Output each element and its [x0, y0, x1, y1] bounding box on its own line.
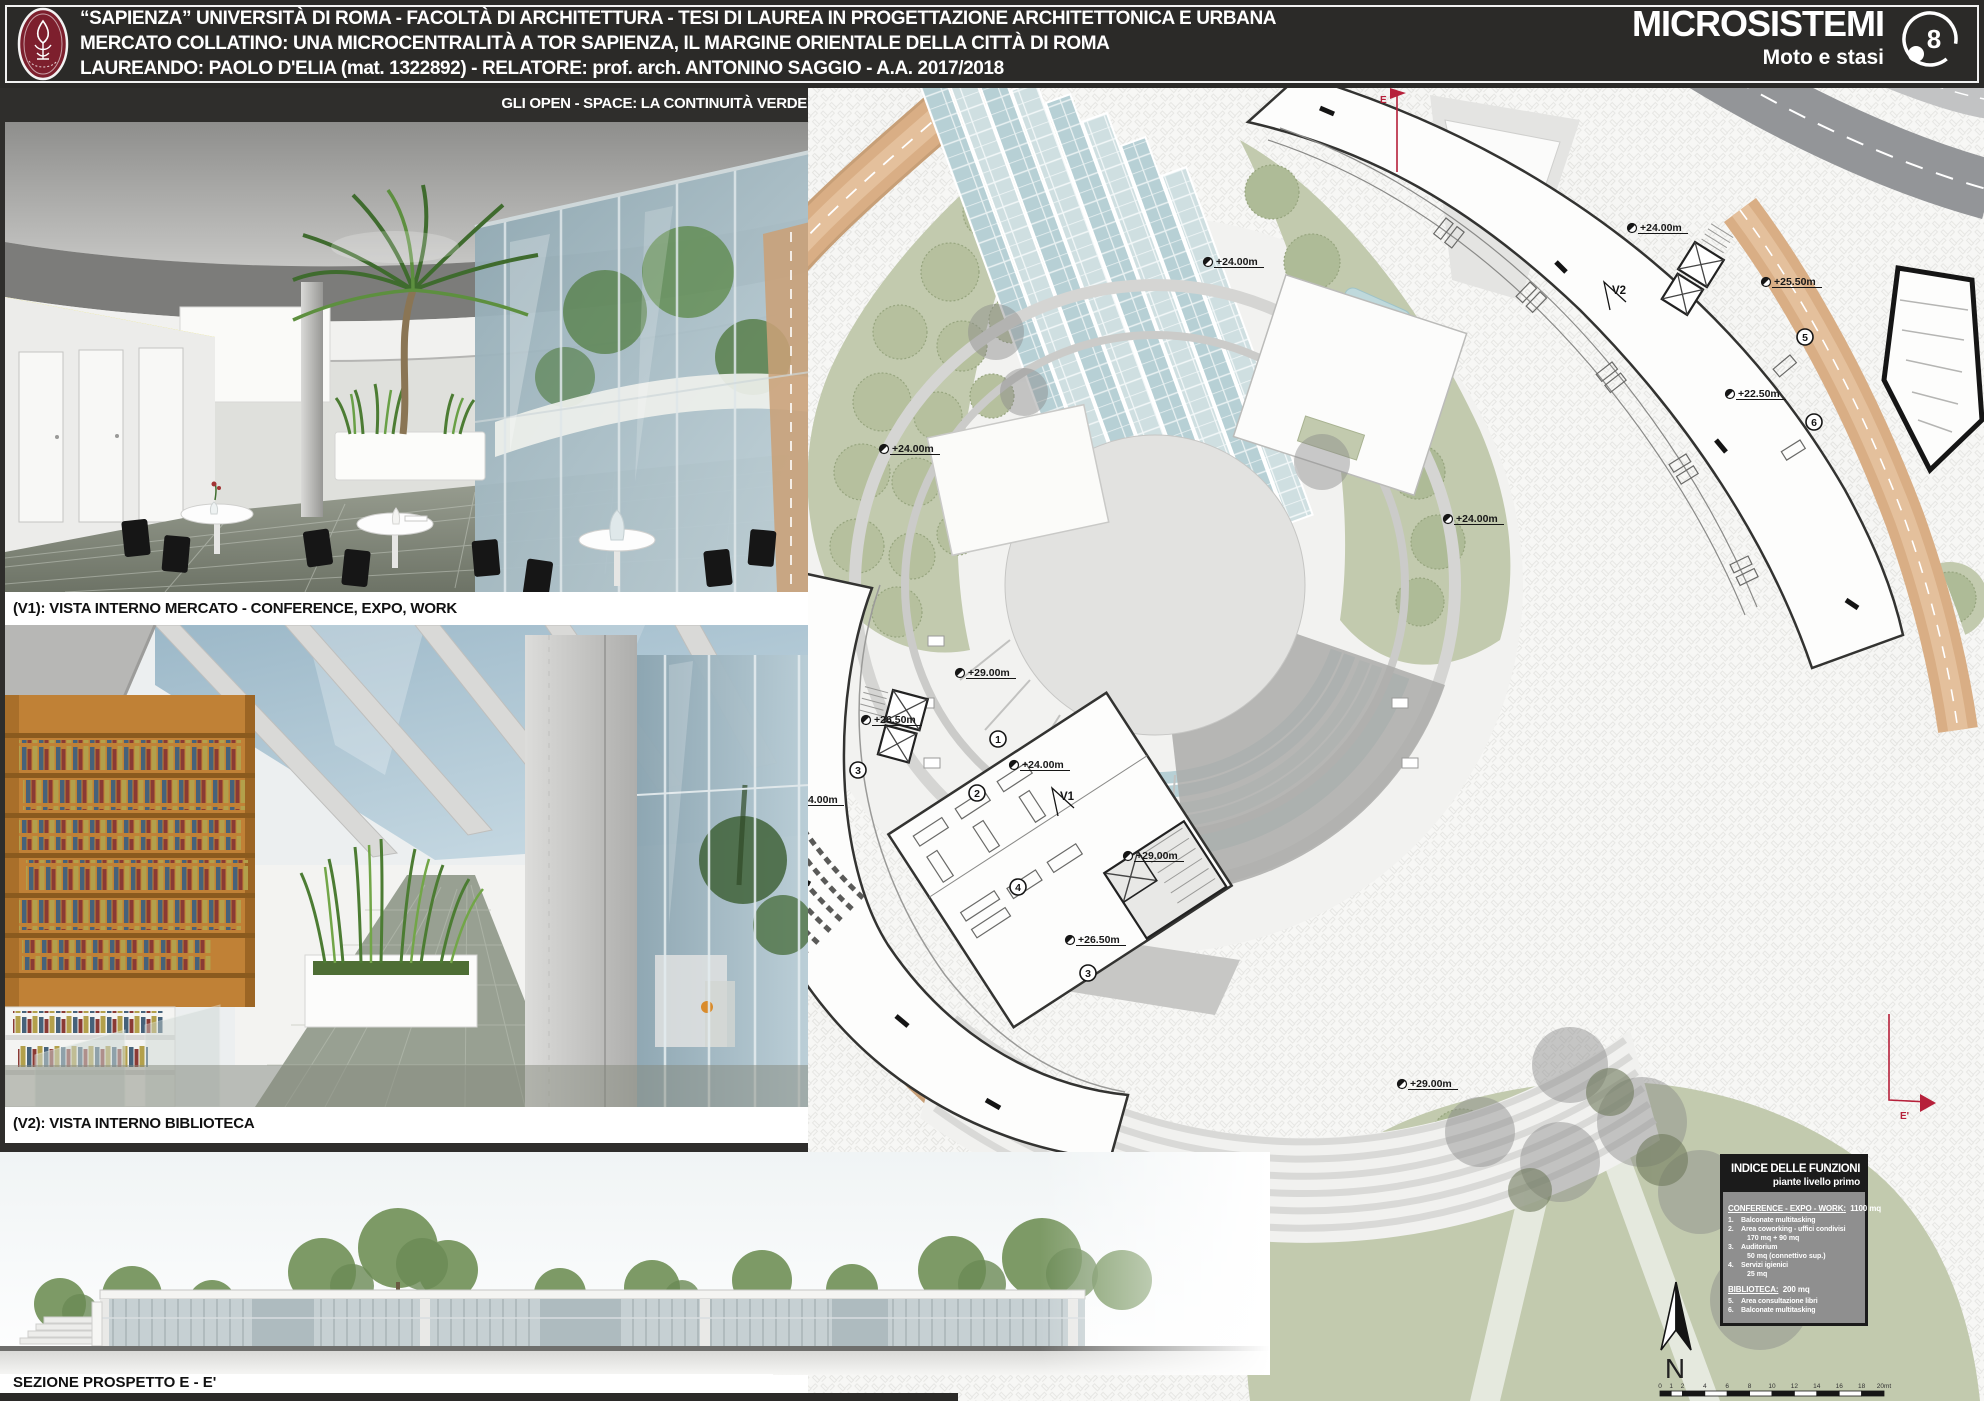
svg-text:1: 1	[995, 734, 1001, 746]
legend-item-detail: 25 mq	[1728, 1270, 1861, 1279]
scale-tick-label: 20mt	[1877, 1383, 1892, 1390]
v2-render-graphic	[5, 625, 810, 1107]
header-bar: “SAPIENZA” UNIVERSITÀ DI ROMA - FACOLTÀ …	[0, 0, 1984, 88]
sheet-number: 8	[1927, 24, 1941, 54]
scale-tick-label: 12	[1791, 1383, 1799, 1390]
scale-tick-label: 2	[1681, 1383, 1685, 1390]
svg-text:2: 2	[974, 788, 980, 800]
svg-text:+24.00m: +24.00m	[1216, 256, 1258, 268]
function-marker: 4	[1010, 879, 1026, 895]
series-subtitle: Moto e stasi	[1632, 46, 1884, 70]
legend-item: 6.Balconate multitasking	[1728, 1306, 1861, 1315]
doors	[19, 348, 183, 522]
svg-text:+26.50m: +26.50m	[874, 714, 916, 726]
scale-tick-label: 6	[1725, 1383, 1729, 1390]
svg-text:+24.00m: +24.00m	[1640, 222, 1682, 234]
svg-text:6: 6	[1811, 417, 1817, 429]
scale-tick-label: 8	[1748, 1383, 1752, 1390]
scale-tick-label: 1	[1669, 1383, 1673, 1390]
svg-text:+22.50m: +22.50m	[1738, 388, 1780, 400]
legend-item: 4.Servizi igienici	[1728, 1261, 1861, 1270]
svg-text:V2: V2	[1612, 285, 1626, 297]
svg-text:+29.00m: +29.00m	[1410, 1078, 1452, 1090]
sapienza-logo	[17, 7, 69, 81]
section-building	[100, 1290, 1085, 1346]
series-block: MICROSISTEMI Moto e stasi	[1632, 5, 1884, 70]
function-marker: 5	[1797, 329, 1813, 345]
scale-tick-label: 10	[1768, 1383, 1776, 1390]
svg-text:+25.50m: +25.50m	[1774, 276, 1816, 288]
legend-item: 2.Area coworking - uffici condivisi	[1728, 1225, 1861, 1234]
v1-render-graphic	[5, 122, 810, 592]
bookshelf	[5, 695, 255, 1007]
function-marker: 3	[850, 762, 866, 778]
scale-tick-label: 14	[1813, 1383, 1821, 1390]
svg-text:3: 3	[855, 765, 861, 777]
sheet-number-badge: 8	[1898, 6, 1962, 72]
section-caption: SEZIONE PROSPETTO E - E'	[0, 1374, 773, 1393]
legend-title-block: INDICE DELLE FUNZIONI piante livello pri…	[1723, 1157, 1865, 1192]
legend-group-heading: BIBLIOTECA: 200 mq	[1728, 1285, 1861, 1294]
header-line3: LAUREANDO: PAOLO D'ELIA (mat. 1322892) -…	[80, 56, 1380, 81]
thesis-board: “SAPIENZA” UNIVERSITÀ DI ROMA - FACOLTÀ …	[0, 0, 1984, 1401]
legend-item: 5.Area consultazione libri	[1728, 1297, 1861, 1306]
svg-text:4: 4	[1015, 882, 1021, 894]
function-marker: 1	[990, 731, 1006, 747]
section-cut-label: E	[1380, 95, 1387, 106]
header-line2: MERCATO COLLATINO: UNA MICROCENTRALITÀ A…	[80, 31, 1380, 56]
svg-text:+24.00m: +24.00m	[892, 443, 934, 455]
function-marker: 6	[1806, 414, 1822, 430]
legend-item: 1.Balconate multitasking	[1728, 1216, 1861, 1225]
v2-caption: (V2): VISTA INTERNO BIBLIOTECA	[5, 1107, 810, 1143]
openspace-caption: GLI OPEN - SPACE: LA CONTINUITÀ VERDE	[0, 88, 807, 122]
scale-tick-label: 0	[1658, 1383, 1662, 1390]
legend-groups: CONFERENCE - EXPO - WORK: 1100 mq1.Balco…	[1723, 1192, 1865, 1323]
svg-text:+24.00m: +24.00m	[1456, 513, 1498, 525]
render-section-ee	[0, 1152, 1270, 1375]
concrete-pier	[525, 635, 637, 1107]
legend-item: 3.Auditorium	[1728, 1243, 1861, 1252]
svg-text:+26.50m: +26.50m	[1078, 934, 1120, 946]
legend-item-detail: 50 mq (connettivo sup.)	[1728, 1252, 1861, 1261]
glass-facade	[475, 152, 810, 592]
left-column: GLI OPEN - SPACE: LA CONTINUITÀ VERDE	[0, 88, 815, 1152]
legend-item-detail: 170 mq + 90 mq	[1728, 1234, 1861, 1243]
v1-caption: (V1): VISTA INTERNO MERCATO - CONFERENCE…	[5, 592, 810, 625]
svg-text:3: 3	[1085, 968, 1091, 980]
svg-text:+29.00m: +29.00m	[1136, 850, 1178, 862]
svg-text:+29.00m: +29.00m	[968, 667, 1010, 679]
section-cut-label: E'	[1900, 1111, 1909, 1122]
section-render-graphic	[0, 1152, 1270, 1375]
header-text: “SAPIENZA” UNIVERSITÀ DI ROMA - FACOLTÀ …	[80, 6, 1380, 81]
header-line1: “SAPIENZA” UNIVERSITÀ DI ROMA - FACOLTÀ …	[80, 6, 1380, 31]
column	[301, 282, 323, 517]
series-title: MICROSISTEMI	[1632, 5, 1884, 43]
svg-text:V1: V1	[1060, 791, 1075, 803]
render-v2-biblioteca	[5, 625, 810, 1107]
legend-subtitle: piante livello primo	[1727, 1177, 1860, 1188]
bottom-bar	[0, 1393, 958, 1401]
scale-tick-label: 4	[1703, 1383, 1707, 1390]
function-marker: 2	[969, 785, 985, 801]
glass-wall-right	[637, 655, 810, 1107]
legend-title: INDICE DELLE FUNZIONI	[1727, 1163, 1860, 1175]
scale-tick-label: 18	[1858, 1383, 1866, 1390]
render-v1-mercato	[5, 122, 810, 592]
svg-text:+24.00m: +24.00m	[1022, 759, 1064, 771]
north-label: N	[1665, 1353, 1685, 1384]
function-marker: 3	[1080, 965, 1096, 981]
legend-group-heading: CONFERENCE - EXPO - WORK: 1100 mq	[1728, 1204, 1861, 1213]
svg-text:5: 5	[1802, 332, 1808, 344]
svg-text:+24.00m: +24.00m	[808, 794, 838, 806]
scale-tick-label: 16	[1836, 1383, 1844, 1390]
functions-legend: INDICE DELLE FUNZIONI piante livello pri…	[1720, 1154, 1868, 1326]
